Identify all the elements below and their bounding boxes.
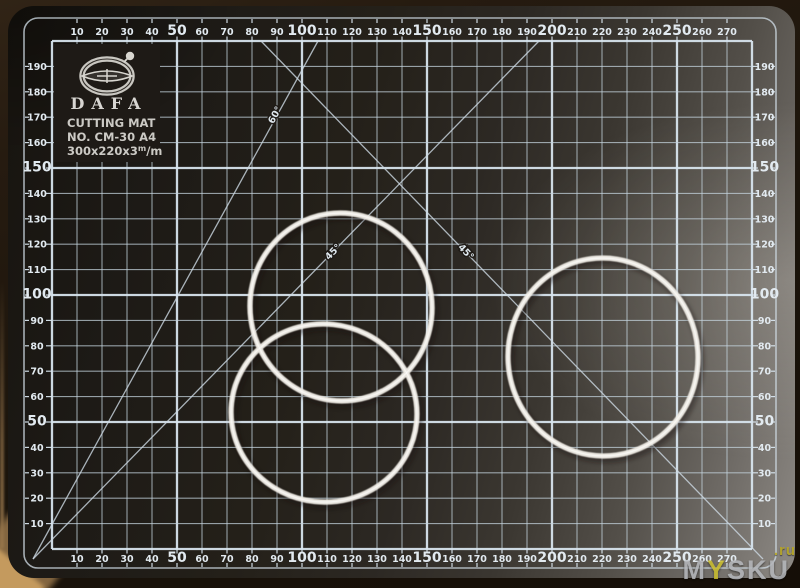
ruler-top-number: 170 — [467, 27, 487, 38]
ruler-bottom-number: 220 — [592, 554, 612, 565]
ruler-top-number: 40 — [145, 27, 159, 38]
ruler-bottom-number: 130 — [367, 554, 387, 565]
ruler-right-number: 100 — [750, 287, 779, 303]
ruler-top-number: 120 — [342, 27, 362, 38]
ruler-right-number: 180 — [755, 87, 775, 98]
mat-spec-text: CUTTING MAT NO. CM-30 A4 300x220x3m/m — [67, 116, 162, 158]
ruler-right-number: 130 — [755, 214, 775, 225]
ruler-top-number: 250 — [662, 23, 691, 39]
ruler-bottom-number: 70 — [220, 554, 234, 565]
ruler-bottom-number: 120 — [342, 554, 362, 565]
ruler-left-number: 150 — [22, 160, 51, 176]
ruler-right-number: 190 — [755, 62, 775, 73]
ruler-right-number: 150 — [750, 160, 779, 176]
ruler-top-number: 130 — [367, 27, 387, 38]
ruler-bottom-number: 100 — [287, 550, 316, 566]
ruler-bottom-number: 140 — [392, 554, 412, 565]
mat-size: 300x220x3m/m — [67, 144, 162, 158]
ruler-bottom-number: 90 — [270, 554, 284, 565]
ruler-bottom-number: 60 — [195, 554, 209, 565]
ruler-bottom-number: 240 — [642, 554, 662, 565]
ruler-left-number: 130 — [27, 214, 47, 225]
ruler-top-number: 20 — [95, 27, 109, 38]
ruler-left-number: 10 — [30, 519, 44, 530]
ruler-top-number: 230 — [617, 27, 637, 38]
ruler-bottom-number: 110 — [317, 554, 337, 565]
ruler-top-number: 100 — [287, 23, 316, 39]
ruler-left-number: 160 — [27, 138, 47, 149]
ruler-bottom-number: 40 — [145, 554, 159, 565]
watermark-part: Y — [707, 555, 727, 585]
ruler-left-number: 170 — [27, 113, 47, 124]
ruler-left-number: 190 — [27, 62, 47, 73]
ruler-bottom-number: 150 — [412, 550, 441, 566]
diagonal-45-right — [261, 41, 763, 559]
ruler-top-number: 140 — [392, 27, 412, 38]
ruler-bottom-number: 10 — [70, 554, 84, 565]
ruler-top-number: 60 — [195, 27, 209, 38]
ruler-top-number: 180 — [492, 27, 512, 38]
ruler-left-number: 40 — [30, 443, 44, 454]
ruler-right-number: 80 — [758, 341, 772, 352]
ruler-right-number: 70 — [758, 367, 772, 378]
ruler-top-number: 30 — [120, 27, 134, 38]
mat-title: CUTTING MAT — [67, 116, 156, 130]
ruler-right-number: 30 — [758, 468, 772, 479]
ruler-top-number: 260 — [692, 27, 712, 38]
ruler-right-number: 110 — [755, 265, 775, 276]
ruler-bottom-number: 20 — [95, 554, 109, 565]
ruler-right-number: 10 — [758, 519, 772, 530]
ruler-top-number: 200 — [537, 23, 566, 39]
ruler-right-number: 170 — [755, 113, 775, 124]
ruler-left-number: 110 — [27, 265, 47, 276]
brand-name: DAFA — [70, 94, 147, 113]
photo-cutting-mat-scene: 1020304050607080901001101201301401501601… — [0, 0, 800, 588]
watermark-mysku: MYSKU .ru — [682, 555, 790, 586]
ruler-left-number: 100 — [22, 287, 51, 303]
ruler-left-number: 120 — [27, 240, 47, 251]
ruler-left-number: 80 — [30, 341, 44, 352]
ruler-top-number: 210 — [567, 27, 587, 38]
watermark-domain-suffix: .ru — [774, 542, 796, 559]
ruler-left-number: 20 — [30, 494, 44, 505]
ruler-top-number: 190 — [517, 27, 537, 38]
ruler-bottom-number: 210 — [567, 554, 587, 565]
ruler-bottom-number: 230 — [617, 554, 637, 565]
ruler-right-number: 90 — [758, 316, 772, 327]
ruler-bottom-number: 80 — [245, 554, 259, 565]
brand-block: DAFA CUTTING MAT NO. CM-30 A4 300x220x3m… — [54, 44, 162, 162]
ruler-left-number: 50 — [27, 414, 47, 430]
ruler-left-number: 90 — [30, 316, 44, 327]
ruler-bottom-number: 180 — [492, 554, 512, 565]
ruler-right-number: 20 — [758, 494, 772, 505]
ruler-left-number: 70 — [30, 367, 44, 378]
ruler-right-number: 120 — [755, 240, 775, 251]
ruler-right-number: 50 — [755, 414, 775, 430]
ruler-bottom-number: 30 — [120, 554, 134, 565]
ruler-left-number: 140 — [27, 189, 47, 200]
mat-print-and-rings: 1020304050607080901001101201301401501601… — [0, 0, 800, 588]
ruler-bottom-number: 170 — [467, 554, 487, 565]
ruler-top-number: 220 — [592, 27, 612, 38]
ruler-bottom-number: 190 — [517, 554, 537, 565]
ruler-bottom-number: 160 — [442, 554, 462, 565]
ruler-top-number: 90 — [270, 27, 284, 38]
angle-labels: 60° 45° 45° — [266, 105, 476, 263]
ruler-bottom-number: 50 — [167, 550, 187, 566]
ruler-top-number: 50 — [167, 23, 187, 39]
watermark-part: SKU — [727, 555, 790, 585]
watermark-part: M — [682, 555, 707, 585]
ruler-top-number: 160 — [442, 27, 462, 38]
mat-model: NO. CM-30 A4 — [67, 130, 156, 144]
ruler-top-number: 240 — [642, 27, 662, 38]
ruler-right-number: 60 — [758, 392, 772, 403]
ruler-right-number: 140 — [755, 189, 775, 200]
ruler-top-number: 70 — [220, 27, 234, 38]
ruler-left-number: 30 — [30, 468, 44, 479]
ruler-left-number: 180 — [27, 87, 47, 98]
ruler-left-number: 60 — [30, 392, 44, 403]
ruler-top-number: 10 — [70, 27, 84, 38]
ruler-right-number: 160 — [755, 138, 775, 149]
ruler-bottom-number: 200 — [537, 550, 566, 566]
ruler-right-number: 40 — [758, 443, 772, 454]
ruler-top-number: 270 — [717, 27, 737, 38]
ruler-top-number: 110 — [317, 27, 337, 38]
ruler-top-number: 80 — [245, 27, 259, 38]
ruler-top-number: 150 — [412, 23, 441, 39]
